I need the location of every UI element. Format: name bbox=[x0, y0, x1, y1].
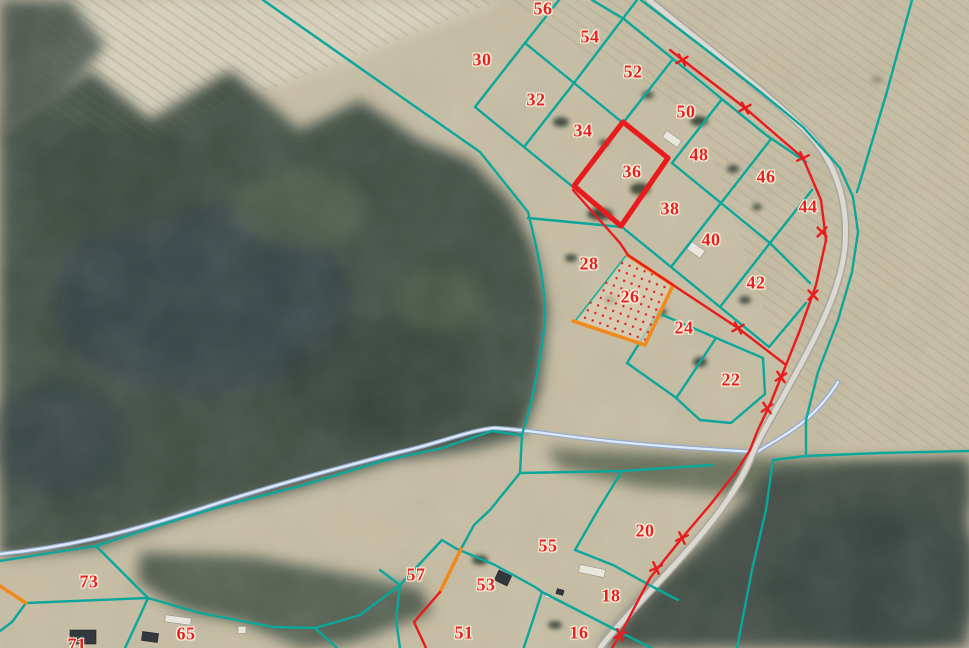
parcel-label-50[interactable]: 50 bbox=[677, 102, 696, 123]
parcel-label-40[interactable]: 40 bbox=[702, 230, 721, 251]
parcel-label-24[interactable]: 24 bbox=[675, 318, 694, 339]
parcel-label-48[interactable]: 48 bbox=[690, 145, 709, 166]
parcel-label-73[interactable]: 73 bbox=[80, 572, 99, 593]
parcel-label-22[interactable]: 22 bbox=[722, 370, 741, 391]
parcel-label-36[interactable]: 36 bbox=[623, 162, 642, 183]
parcel-label-44[interactable]: 44 bbox=[799, 197, 818, 218]
parcel-label-28[interactable]: 28 bbox=[580, 254, 599, 275]
parcel-label-18[interactable]: 18 bbox=[602, 586, 621, 607]
parcel-label-30[interactable]: 30 bbox=[473, 50, 492, 71]
parcel-label-20[interactable]: 20 bbox=[636, 521, 655, 542]
parcel-label-65[interactable]: 65 bbox=[177, 624, 196, 645]
parcel-label-16[interactable]: 16 bbox=[570, 623, 589, 644]
aerial-map-image bbox=[0, 0, 969, 648]
parcel-label-71[interactable]: 71 bbox=[68, 635, 87, 648]
parcel-label-55[interactable]: 55 bbox=[539, 536, 558, 557]
parcel-label-51[interactable]: 51 bbox=[455, 623, 474, 644]
map-canvas[interactable]: 5654305232503448364644384028422624222055… bbox=[0, 0, 969, 648]
parcel-label-56[interactable]: 56 bbox=[534, 0, 553, 20]
parcel-label-42[interactable]: 42 bbox=[747, 273, 766, 294]
parcel-label-52[interactable]: 52 bbox=[624, 62, 643, 83]
parcel-label-26[interactable]: 26 bbox=[621, 287, 640, 308]
parcel-label-32[interactable]: 32 bbox=[527, 90, 546, 111]
parcel-label-57[interactable]: 57 bbox=[407, 565, 426, 586]
parcel-label-38[interactable]: 38 bbox=[661, 199, 680, 220]
parcel-label-34[interactable]: 34 bbox=[574, 121, 593, 142]
parcel-label-54[interactable]: 54 bbox=[581, 27, 600, 48]
parcel-label-53[interactable]: 53 bbox=[477, 575, 496, 596]
parcel-label-46[interactable]: 46 bbox=[757, 167, 776, 188]
